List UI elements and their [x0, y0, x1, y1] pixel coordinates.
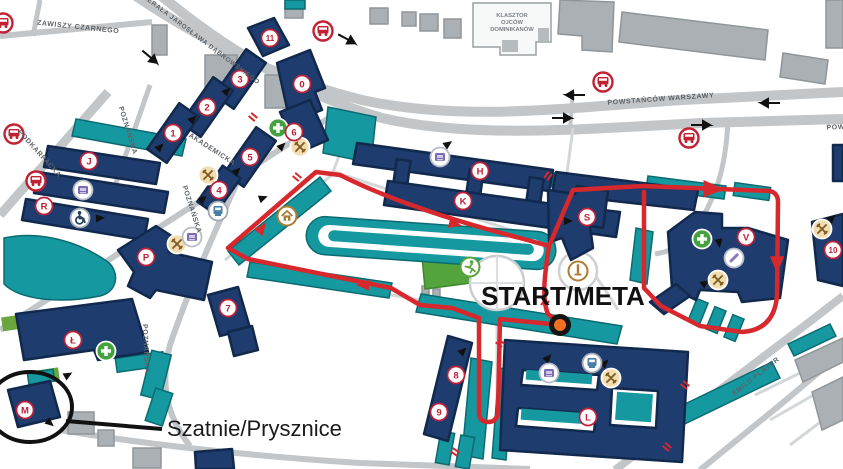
building-badge-5: 5 [242, 149, 259, 166]
svg-text:0: 0 [299, 79, 304, 90]
map-canvas: KLASZTOR OJCÓW DOMINIKANÓW [0, 0, 843, 469]
building-badge-S: S [579, 209, 596, 226]
atm-icon [583, 354, 602, 373]
bus-stop-icon [680, 129, 699, 148]
svg-text:1: 1 [170, 128, 176, 139]
svg-text:7: 7 [225, 303, 230, 314]
start-meta-point [552, 317, 569, 334]
printer-icon [540, 364, 559, 383]
restaurant-icon [709, 271, 728, 290]
klasztor-label-2: OJCÓW [501, 18, 523, 26]
campus-run-map: KLASZTOR OJCÓW DOMINIKANÓW [0, 0, 843, 469]
medical-icon [269, 119, 288, 138]
svg-text:2: 2 [204, 102, 209, 113]
bus-stop-icon [594, 73, 613, 92]
bus-stop-icon [314, 22, 333, 41]
building-badge-J: J [81, 153, 98, 170]
svg-text:4: 4 [216, 185, 222, 196]
building-bottom-edge [195, 449, 234, 469]
atm-icon [209, 202, 228, 221]
building-badge-R: R [36, 198, 53, 215]
svg-text:J: J [86, 156, 91, 167]
building-badge-P: P [138, 249, 155, 266]
printer-icon [431, 148, 450, 167]
bus-stop-icon [27, 172, 46, 191]
start-meta-label: START/META [481, 281, 645, 311]
building-badge-11: 11 [262, 30, 279, 47]
restaurant-icon [813, 220, 832, 239]
svg-text:8: 8 [453, 370, 458, 381]
klasztor-label-1: KLASZTOR [496, 13, 528, 19]
building-7b [228, 326, 258, 356]
building-badge-Ł: Ł [65, 332, 82, 349]
entrance-arrow [63, 369, 75, 380]
restaurant-icon [602, 369, 621, 388]
bus-stop-icon [0, 14, 13, 33]
building-badge-8: 8 [448, 367, 465, 384]
building-H [353, 143, 553, 191]
svg-text:R: R [41, 201, 48, 212]
medical-icon [97, 342, 116, 361]
svg-text:9: 9 [436, 407, 441, 418]
building-M [8, 381, 60, 427]
svg-text:P: P [143, 252, 150, 263]
traffic-arrow [566, 91, 585, 99]
svg-text:5: 5 [247, 152, 253, 163]
monument-icon [569, 262, 588, 281]
building-badge-K: K [455, 193, 472, 210]
svg-text:L: L [585, 412, 591, 423]
entrance-arrow [258, 193, 269, 204]
svg-text:K: K [460, 196, 467, 207]
restaurant-icon [199, 166, 218, 185]
edit-icon [725, 249, 744, 268]
svg-text:3: 3 [237, 74, 242, 85]
building-badge-6: 6 [286, 124, 303, 141]
building-badge-7: 7 [220, 300, 237, 317]
building-badge-2: 2 [199, 99, 216, 116]
building-badge-10: 10 [825, 242, 842, 259]
home-icon [278, 207, 297, 226]
building-badge-V: V [738, 229, 755, 246]
svg-text:6: 6 [291, 127, 296, 138]
wheelchair-icon [71, 209, 90, 228]
svg-text:H: H [477, 166, 484, 177]
svg-text:S: S [584, 212, 590, 223]
street-label: AKADEMICKA [187, 132, 236, 167]
klasztor-building: KLASZTOR OJCÓW DOMINIKANÓW [473, 3, 551, 55]
gate-marker [249, 113, 258, 121]
building-badge-H: H [472, 163, 489, 180]
medical-icon [693, 230, 712, 249]
svg-text:10: 10 [829, 246, 838, 255]
gate-marker [293, 173, 302, 181]
runner-icon [461, 258, 480, 277]
svg-text:Ł: Ł [70, 335, 76, 346]
printer-icon [74, 181, 93, 200]
svg-text:V: V [743, 232, 750, 243]
building-badge-M: M [17, 402, 34, 419]
building-badge-L: L [580, 409, 597, 426]
traffic-arrow [552, 114, 571, 122]
building-ne-sliver [833, 145, 843, 181]
building-badge-9: 9 [431, 404, 448, 421]
klasztor-label-3: DOMINIKANÓW [490, 25, 534, 33]
svg-text:11: 11 [266, 34, 275, 43]
traffic-arrow [336, 31, 357, 47]
svg-text:M: M [21, 405, 29, 416]
changing-rooms-label: Szatnie/Prysznice [167, 416, 342, 441]
building-badge-1: 1 [165, 125, 182, 142]
building-badge-0: 0 [294, 76, 311, 93]
building-badge-4: 4 [211, 182, 228, 199]
